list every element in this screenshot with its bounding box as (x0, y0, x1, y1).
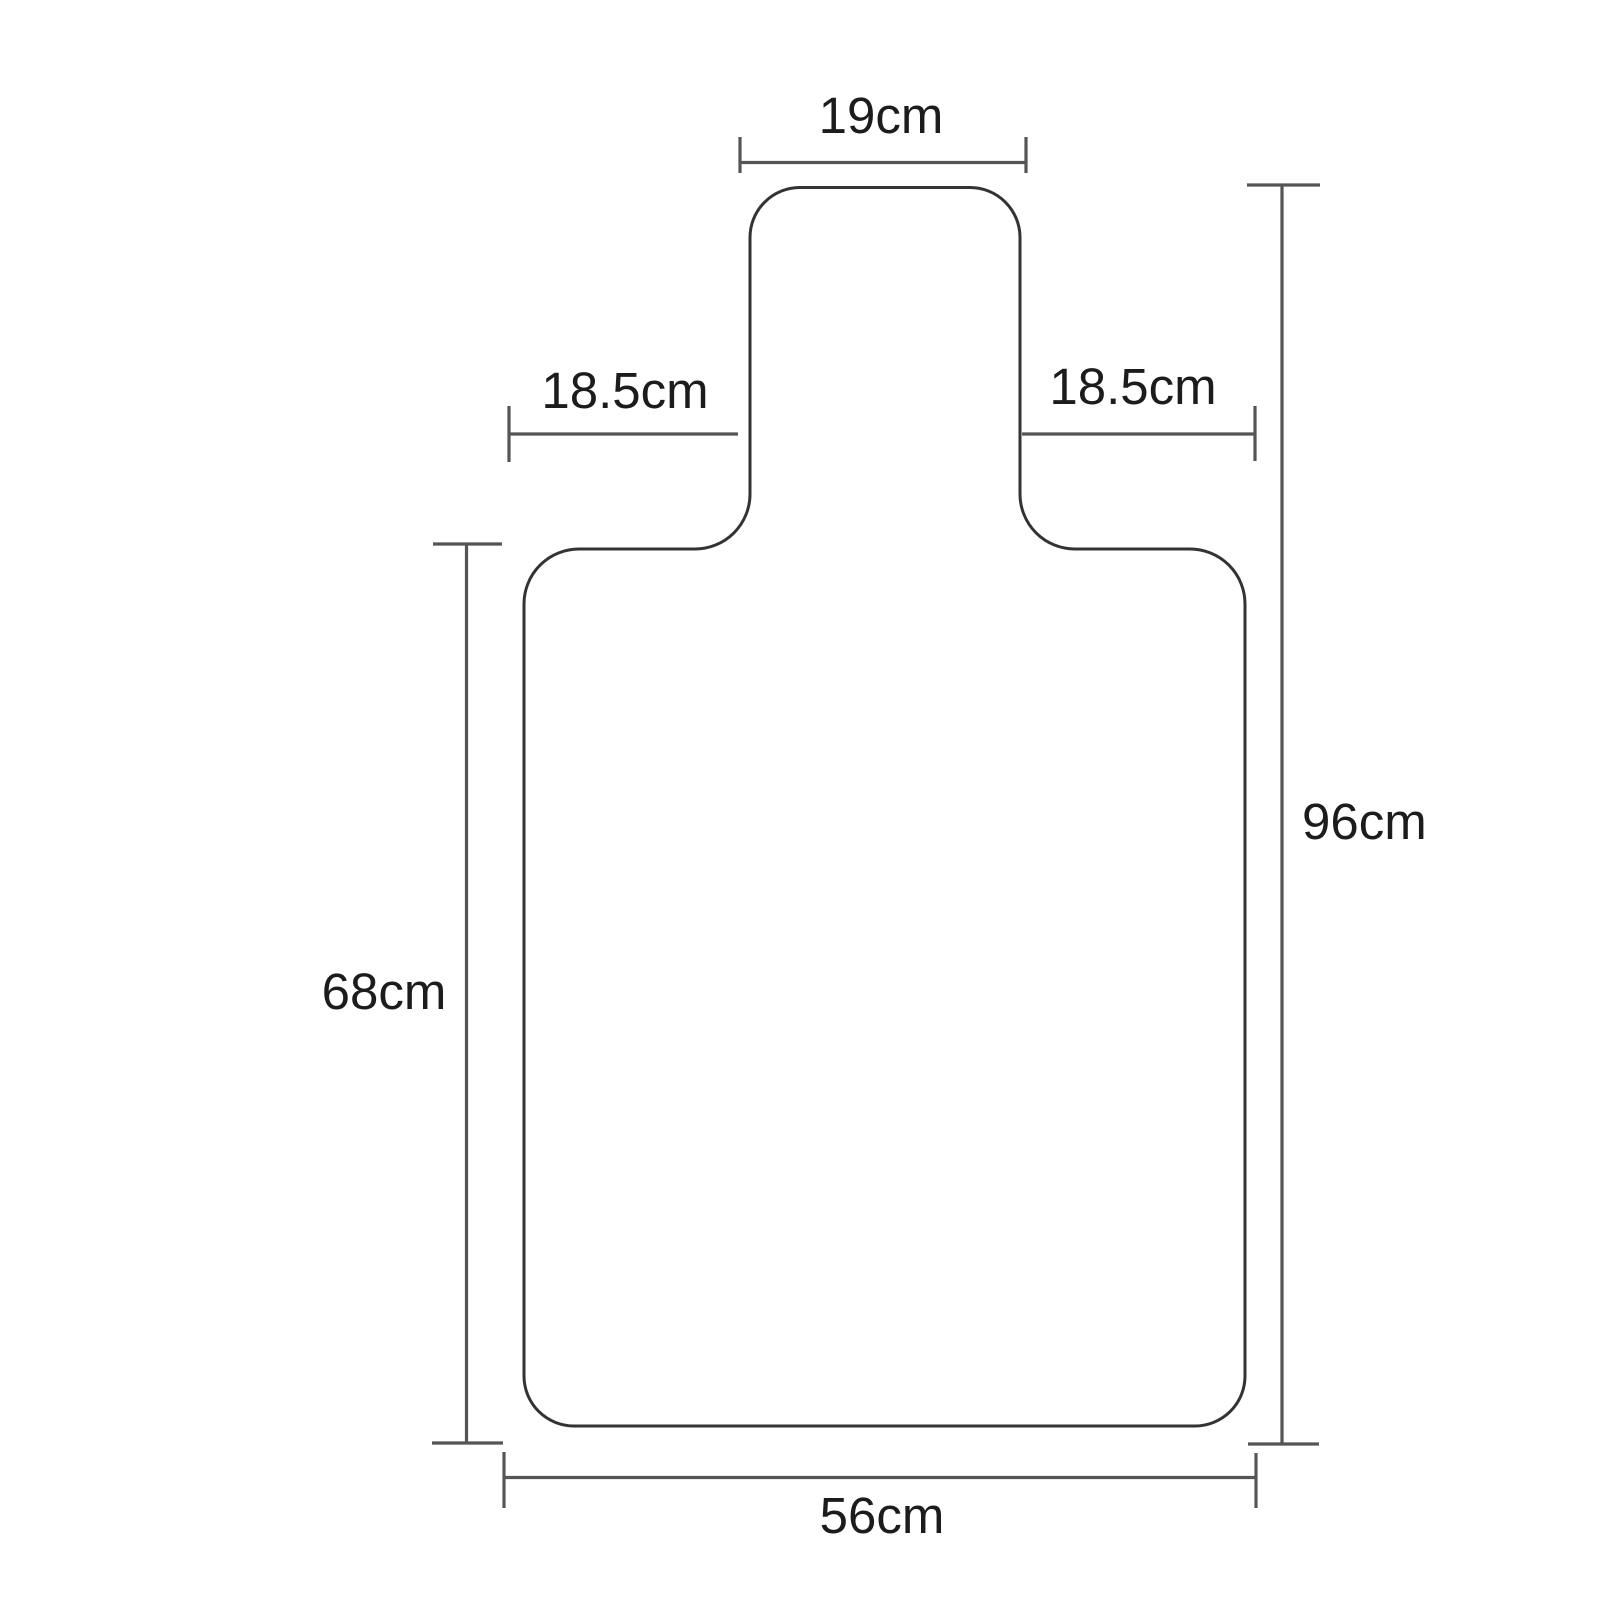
svg-text:96cm: 96cm (1302, 793, 1427, 850)
svg-text:18.5cm: 18.5cm (541, 362, 708, 419)
svg-text:19cm: 19cm (819, 87, 944, 144)
svg-text:18.5cm: 18.5cm (1049, 358, 1216, 415)
svg-text:68cm: 68cm (322, 963, 447, 1020)
svg-text:56cm: 56cm (820, 1487, 945, 1544)
